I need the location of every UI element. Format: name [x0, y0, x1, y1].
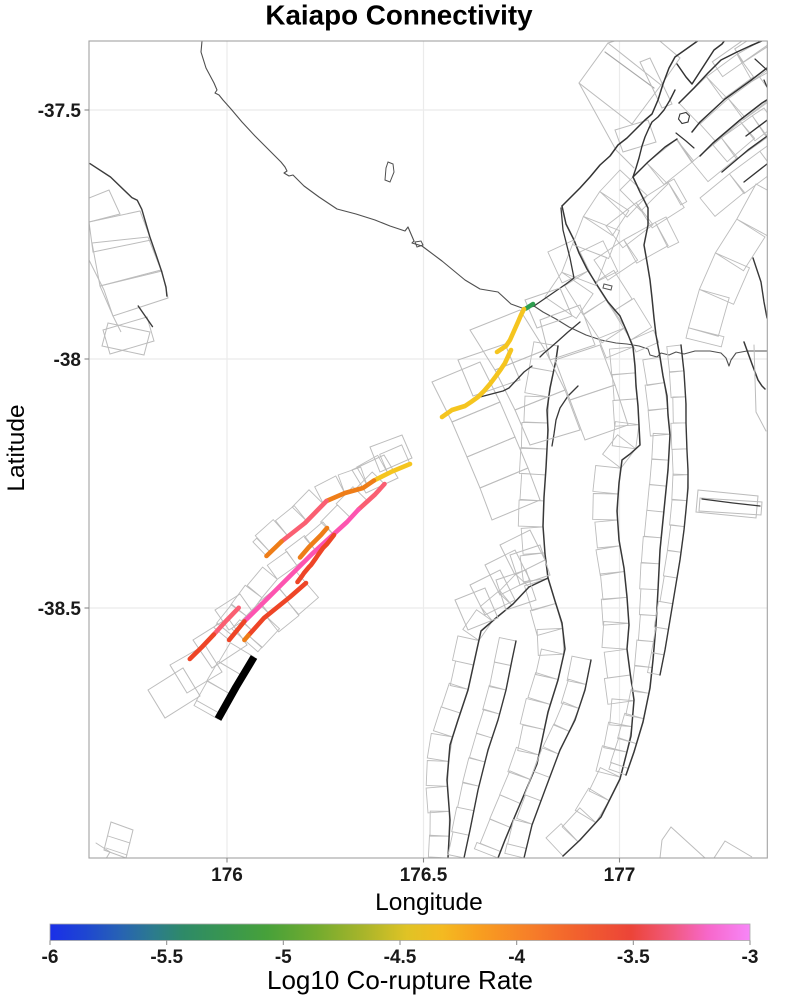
- svg-text:Kaiapo Connectivity: Kaiapo Connectivity: [265, 0, 533, 31]
- svg-text:176: 176: [211, 865, 243, 886]
- svg-text:-6: -6: [42, 947, 59, 968]
- svg-text:-38.5: -38.5: [38, 599, 82, 620]
- svg-text:-5.5: -5.5: [150, 947, 183, 968]
- svg-text:-3: -3: [742, 947, 759, 968]
- svg-text:Latitude: Latitude: [3, 404, 30, 491]
- svg-text:176.5: 176.5: [400, 865, 448, 886]
- svg-text:177: 177: [604, 865, 636, 886]
- svg-text:-3.5: -3.5: [617, 947, 650, 968]
- svg-text:-37.5: -37.5: [38, 101, 82, 122]
- svg-text:Longitude: Longitude: [375, 889, 483, 916]
- svg-text:-38: -38: [54, 350, 81, 371]
- svg-text:Log10 Co-rupture Rate: Log10 Co-rupture Rate: [267, 965, 533, 995]
